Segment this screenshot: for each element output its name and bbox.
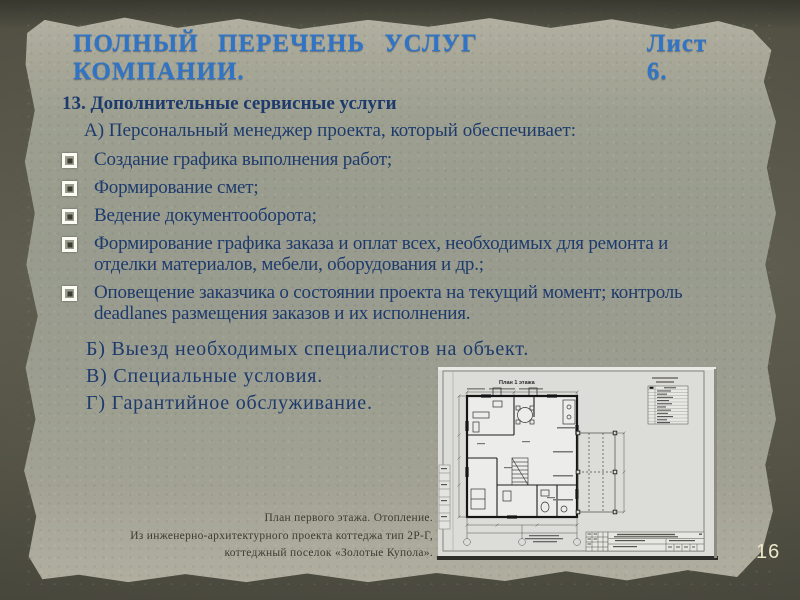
bullet-text: Оповещение заказчика о состоянии проекта… (94, 282, 706, 324)
bullet-text: Ведение документооборота; (94, 205, 317, 226)
list-item: Ведение документооборота; (60, 205, 750, 226)
slide-title-row: ПОЛНЫЙ ПЕРЕЧЕНЬ УСЛУГ КОМПАНИИ. Лист 6. (73, 30, 732, 86)
list-item: Создание графика выполнения работ; (60, 149, 750, 170)
caption-line: План первого этажа. Отопление. (100, 510, 433, 528)
square-bullet-icon (62, 181, 77, 196)
presentation-slide: ПОЛНЫЙ ПЕРЕЧЕНЬ УСЛУГ КОМПАНИИ. Лист 6. … (0, 0, 800, 600)
square-bullet-icon (62, 153, 77, 168)
floor-plan-figure: План 1 этажа (437, 367, 718, 560)
bullet-text: Создание графика выполнения работ; (94, 149, 392, 170)
list-item: Оповещение заказчика о состоянии проекта… (60, 282, 750, 324)
slide-title: ПОЛНЫЙ ПЕРЕЧЕНЬ УСЛУГ КОМПАНИИ. (73, 30, 647, 86)
list-item: Формирование смет; (60, 177, 750, 198)
figure-caption: План первого этажа. Отопление. Из инжене… (100, 510, 433, 563)
bullet-text: Формирование смет; (94, 177, 258, 198)
subsection-a-line: А) Персональный менеджер проекта, которы… (84, 120, 576, 142)
square-bullet-icon (62, 237, 77, 252)
plan-sheet-label: План 1 этажа (499, 380, 536, 386)
sheet-number-label: Лист 6. (647, 30, 732, 86)
service-bullet-list: Создание графика выполнения работ; Форми… (60, 149, 750, 331)
section-heading: 13. Дополнительные сервисные услуги (62, 93, 397, 115)
bullet-text: Формирование графика заказа и оплат всех… (94, 233, 706, 275)
square-bullet-icon (62, 209, 77, 224)
floor-plan-drawing: План 1 этажа (437, 367, 718, 560)
list-item: Формирование графика заказа и оплат всех… (60, 233, 750, 275)
subsection-b-line: Б) Выезд необходимых специалистов на объ… (86, 339, 529, 360)
page-number: 16 (756, 541, 780, 564)
caption-line: коттеджный поселок «Золотые Купола». (100, 545, 433, 563)
caption-line: Из инженерно-архитектурного проекта котт… (100, 528, 433, 546)
square-bullet-icon (62, 286, 77, 301)
